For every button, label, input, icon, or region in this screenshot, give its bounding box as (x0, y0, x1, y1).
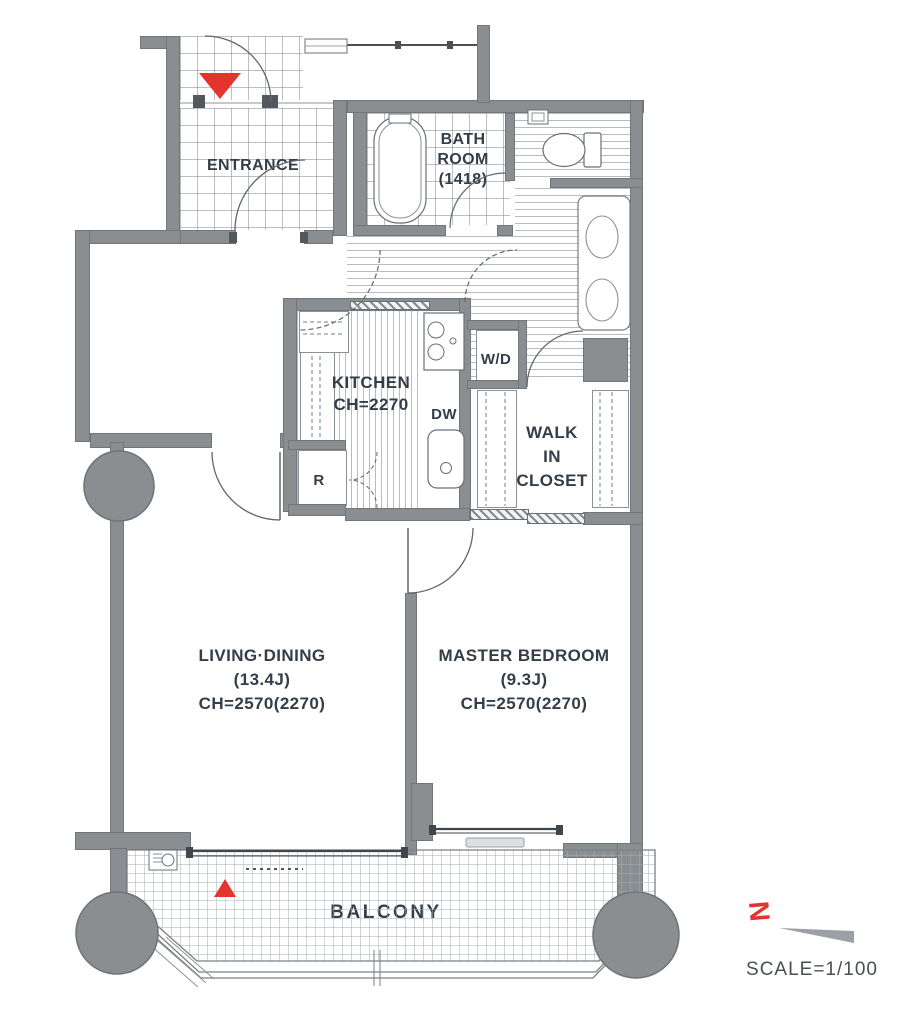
wall-segment (505, 113, 515, 181)
wall-segment (180, 230, 236, 244)
wall-segment (110, 442, 124, 852)
master-bedroom-label: MASTER BEDROOM (9.3J) CH=2570(2270) (439, 644, 610, 716)
evacuation-marker (214, 879, 236, 897)
bathroom-label: BATH ROOM (1418) (437, 130, 488, 190)
wall-segment (583, 338, 628, 382)
wic-hanger-left (477, 390, 517, 508)
wall-segment (345, 508, 470, 521)
wall-segment (166, 36, 180, 238)
wall-segment (630, 100, 643, 879)
bedroom-door (408, 528, 473, 593)
wall-segment (617, 843, 643, 900)
sliding-door (470, 509, 529, 520)
wall-segment (288, 504, 346, 516)
wall-segment (288, 440, 346, 450)
wall-segment (75, 230, 181, 244)
scale-note: SCALE=1/100 (746, 960, 878, 980)
wall-segment (140, 36, 168, 49)
porch-railing (305, 41, 477, 49)
washroom-floor-top (515, 188, 630, 236)
walk-in-closet-label: WALK IN CLOSET (516, 421, 587, 493)
wall-segment (347, 100, 644, 113)
north-letter: N (749, 900, 771, 922)
refrigerator-label: R (313, 471, 324, 491)
living-door (212, 452, 280, 520)
wall-segment (477, 25, 490, 103)
wall-segment (90, 433, 212, 448)
kitchen-storage-strip (300, 352, 335, 446)
living-window (186, 847, 408, 869)
balcony-label: BALCONY (330, 903, 441, 923)
wic-hanger-right (592, 390, 629, 508)
north-needle (779, 928, 854, 943)
corridor-floor-left (347, 236, 459, 298)
wall-segment (583, 512, 643, 525)
dishwasher-label: DW (431, 405, 457, 425)
kitchen-label: KITCHEN CH=2270 (332, 372, 410, 416)
sliding-door (527, 513, 585, 524)
wall-segment (304, 230, 333, 244)
floor-plan: ENTRANCE BATH ROOM (1418) KITCHEN CH=227… (0, 0, 907, 1024)
balcony-sink-icon (149, 850, 177, 870)
entrance-label: ENTRANCE (207, 156, 299, 176)
wall-segment (283, 298, 297, 512)
meter-box (305, 39, 347, 53)
wall-segment (550, 178, 643, 188)
wall-segment (411, 783, 433, 841)
stove-icon (424, 313, 464, 370)
bedroom-window (429, 825, 563, 847)
wall-segment (459, 298, 471, 512)
wall-segment (75, 832, 191, 850)
entrance-porch-floor (180, 36, 303, 100)
wall-segment (333, 100, 347, 236)
wall-segment (518, 320, 527, 389)
wall-segment (75, 230, 90, 442)
toilet-floor (515, 113, 630, 178)
washer-dryer-label: W/D (481, 350, 511, 370)
hall-closet (299, 311, 349, 353)
wall-segment (353, 225, 446, 236)
sliding-door (350, 301, 430, 310)
wall-segment (353, 100, 367, 236)
wall-segment (497, 225, 513, 236)
wall-segment (110, 848, 127, 896)
living-dining-label: LIVING·DINING (13.4J) CH=2570(2270) (198, 644, 325, 716)
